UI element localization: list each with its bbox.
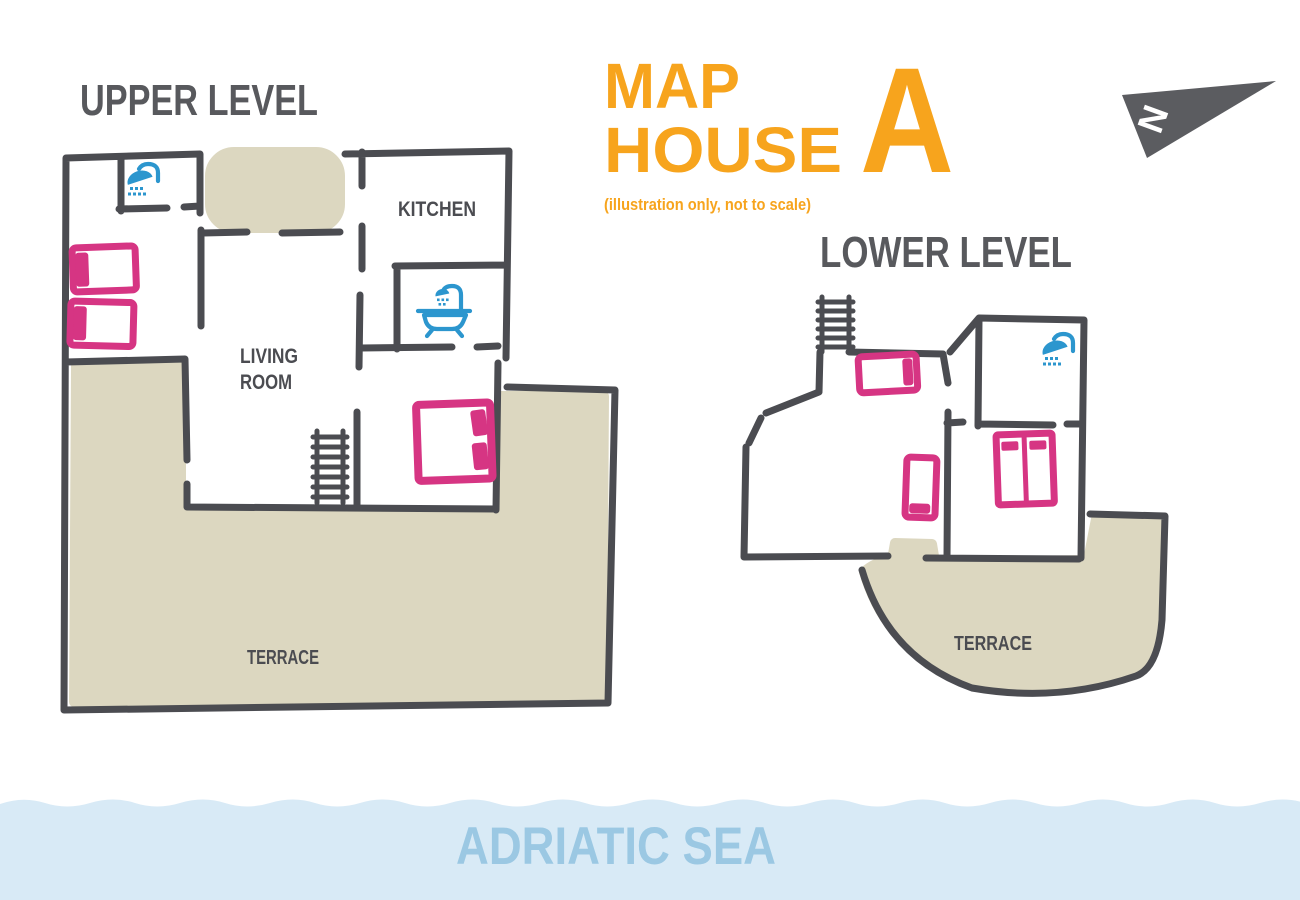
lower-single-bed-h-icon — [858, 354, 918, 393]
floor-plan-canvas: ADRIATIC SEA MAP HOUSE A (illustration o… — [0, 0, 1300, 900]
lower-level-plan: TERRACE — [744, 297, 1165, 693]
upper-terrace-area — [74, 366, 604, 702]
title-word-house: HOUSE — [604, 114, 842, 186]
title-subtitle: (illustration only, not to scale) — [604, 196, 811, 214]
upper-level-plan: KITCHEN LIVING ROOM TERRACE — [64, 151, 615, 710]
upper-single-bed-1-icon — [72, 246, 136, 292]
lower-shower-icon — [1040, 334, 1073, 366]
lower-terrace-area — [864, 519, 1158, 689]
kitchen-label: KITCHEN — [398, 198, 476, 221]
upper-balcony-area — [210, 152, 340, 228]
upper-stairs-icon — [313, 431, 347, 503]
upper-single-bed-2-icon — [70, 301, 134, 347]
sea-label: ADRIATIC SEA — [456, 817, 776, 876]
living-room-label-line2: ROOM — [240, 371, 292, 394]
upper-level-heading: UPPER LEVEL — [80, 76, 318, 125]
lower-level-heading: LOWER LEVEL — [820, 228, 1072, 277]
lower-terrace-label: TERRACE — [954, 633, 1032, 655]
upper-shower-icon — [125, 164, 158, 196]
title-word-map: MAP — [604, 50, 740, 122]
north-arrow-icon: N — [1122, 81, 1276, 158]
lower-single-bed-v-icon — [905, 457, 937, 518]
upper-terrace-label: TERRACE — [247, 647, 319, 669]
title-house-variant: A — [860, 36, 954, 204]
bathtub-icon — [418, 286, 470, 336]
upper-double-bed-icon — [416, 402, 493, 481]
floor-plan-svg: ADRIATIC SEA MAP HOUSE A (illustration o… — [0, 0, 1300, 900]
lower-stairs-icon — [818, 297, 853, 352]
living-room-label-line1: LIVING — [240, 345, 298, 368]
lower-twin-bed-icon — [996, 433, 1054, 505]
